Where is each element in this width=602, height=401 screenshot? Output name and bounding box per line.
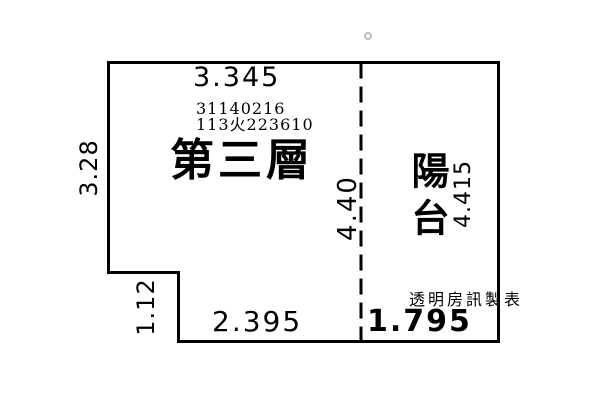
dimension-left-height: 3.28: [77, 130, 101, 206]
registration-mark-circle: [365, 33, 371, 39]
room-label-main-floor: 第三層: [170, 139, 314, 183]
dimension-top-width: 3.345: [193, 64, 280, 91]
dimension-balcony-height: 4.415: [453, 152, 475, 236]
floor-plan-canvas: 3.345 31140216 113火223610 第三層 4.40 陽台 4.…: [0, 0, 602, 401]
room-label-balcony: 陽台: [408, 151, 446, 245]
watermark-text: 透明房訊製表: [409, 292, 523, 308]
dimension-bottom-balcony-width: 1.795: [367, 307, 472, 337]
dimension-bottom-main-width: 2.395: [212, 308, 302, 336]
dimension-left-lower-height: 1.12: [134, 271, 158, 343]
registry-number-line2: 113火223610: [196, 117, 314, 133]
dimension-divider-height: 4.40: [335, 168, 361, 248]
